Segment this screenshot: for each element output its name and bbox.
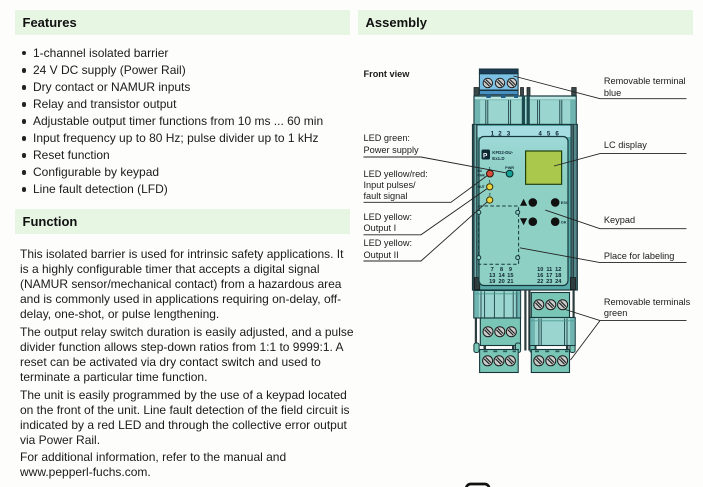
svg-text:3: 3 [507, 131, 511, 138]
svg-text:222324: 222324 [537, 279, 562, 285]
svg-text:KFD2-DU-: KFD2-DU- [492, 150, 513, 155]
svg-text:OK: OK [561, 220, 567, 224]
svg-text:4: 4 [538, 131, 542, 138]
svg-text:IN/: IN/ [478, 169, 482, 173]
svg-text:192021: 192021 [489, 279, 513, 285]
svg-text:CHK: CHK [478, 174, 486, 178]
svg-text:OUT: OUT [478, 185, 486, 189]
svg-text:P: P [483, 153, 488, 160]
svg-text:ESC: ESC [561, 201, 569, 205]
svg-text:6: 6 [555, 131, 559, 138]
svg-text:Ex1.D: Ex1.D [492, 156, 504, 161]
svg-text:1: 1 [491, 131, 495, 138]
svg-text:101112: 101112 [537, 267, 561, 273]
svg-text:5: 5 [547, 131, 551, 138]
svg-text:2: 2 [489, 193, 491, 197]
svg-text:1: 1 [489, 179, 491, 183]
svg-text:2: 2 [498, 131, 502, 138]
svg-text:PWR: PWR [505, 166, 514, 170]
